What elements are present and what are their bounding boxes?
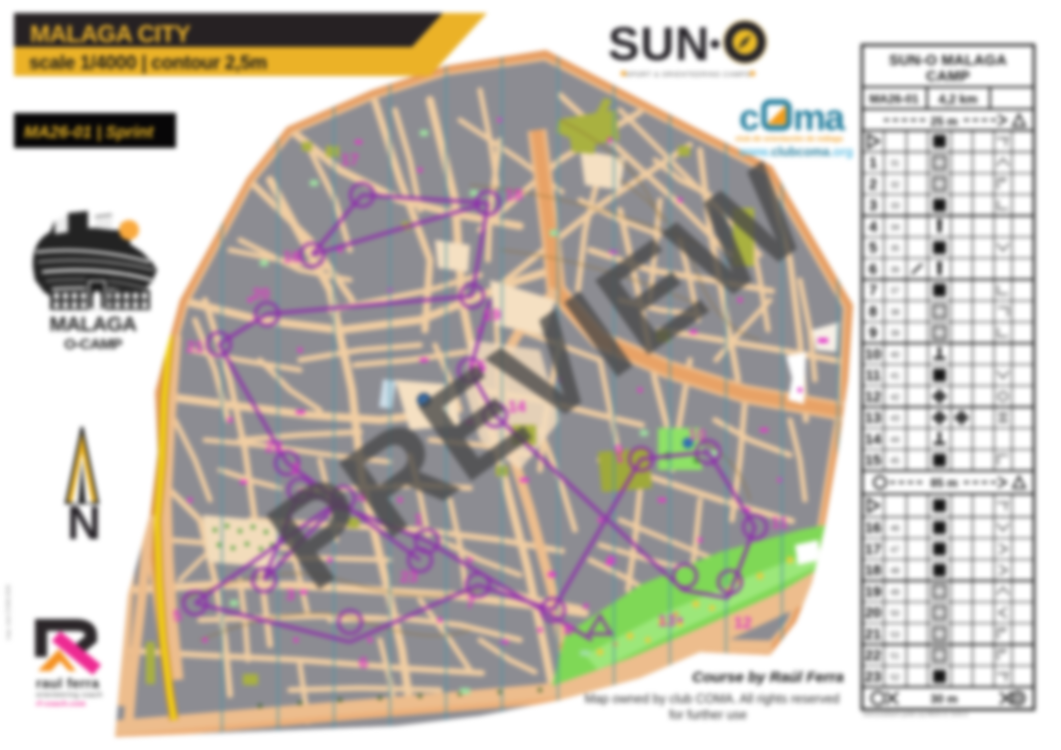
svg-text:50: 50	[891, 609, 900, 618]
svg-text:17: 17	[341, 152, 359, 169]
svg-text:23: 23	[865, 669, 881, 685]
svg-text:10: 10	[688, 427, 706, 444]
svg-text:12: 12	[865, 389, 881, 405]
svg-text:20: 20	[865, 606, 881, 622]
svg-text:Course by Raúl Ferra: Course by Raúl Ferra	[692, 669, 844, 686]
svg-text:46: 46	[891, 524, 900, 533]
svg-text:11: 11	[771, 515, 788, 532]
svg-text:39: 39	[891, 329, 900, 338]
svg-text:3: 3	[286, 587, 295, 604]
svg-text:4,2 km: 4,2 km	[939, 93, 978, 107]
svg-text:1: 1	[869, 156, 877, 172]
svg-text:5: 5	[173, 608, 182, 625]
svg-text:8: 8	[869, 304, 877, 320]
svg-text:51: 51	[891, 652, 900, 661]
svg-text:scale 1/4000 | contour 2,5m: scale 1/4000 | contour 2,5m	[29, 53, 267, 74]
svg-text:18: 18	[865, 563, 881, 579]
svg-text:38: 38	[891, 308, 900, 317]
svg-text:5: 5	[869, 241, 877, 257]
svg-text:MA26-01: MA26-01	[869, 92, 919, 106]
svg-text:club de orientación de málaga: club de orientación de málaga	[735, 134, 843, 143]
svg-text:21: 21	[865, 627, 881, 643]
svg-text:SUN: SUN	[608, 17, 710, 70]
svg-text:36: 36	[891, 265, 900, 274]
svg-text:48: 48	[891, 567, 900, 576]
svg-text:SUN-O MALAGA: SUN-O MALAGA	[889, 53, 1007, 69]
svg-text:21: 21	[186, 339, 204, 356]
svg-text:rf-coach.com: rf-coach.com	[36, 701, 86, 708]
svg-text:32: 32	[891, 180, 900, 189]
svg-text:9: 9	[614, 443, 623, 460]
svg-text:12: 12	[734, 615, 752, 632]
svg-text:map: club COMA 2026: map: club COMA 2026	[6, 585, 12, 640]
svg-text:O-CAMP: O-CAMP	[64, 336, 122, 353]
svg-text:orienteering coach: orienteering coach	[36, 692, 103, 699]
svg-text:43: 43	[891, 414, 900, 423]
svg-text:9: 9	[869, 326, 877, 342]
svg-text:MALAGA CITY: MALAGA CITY	[30, 21, 191, 48]
svg-text:20: 20	[252, 286, 270, 303]
svg-text:18: 18	[505, 187, 523, 204]
svg-text:52: 52	[891, 673, 900, 682]
svg-text:SPORT & ORIENTEERING CAMPS: SPORT & ORIENTEERING CAMPS	[626, 72, 751, 79]
svg-text:MALAGA: MALAGA	[50, 313, 138, 336]
svg-text:16: 16	[283, 249, 301, 266]
svg-text:53: 53	[891, 630, 900, 639]
svg-text:33: 33	[891, 202, 900, 211]
svg-text:49: 49	[891, 588, 900, 597]
svg-text:4: 4	[869, 219, 877, 235]
svg-text:2: 2	[869, 177, 877, 193]
svg-text:19: 19	[865, 584, 881, 600]
svg-text:40: 40	[891, 350, 900, 359]
svg-text:44: 44	[891, 435, 900, 444]
svg-text:Map owned by club COMA. All ri: Map owned by club COMA. All rights reser…	[585, 692, 840, 706]
svg-text:47: 47	[891, 545, 900, 554]
svg-text:34: 34	[891, 223, 900, 232]
svg-text:25 m: 25 m	[930, 115, 957, 129]
svg-text:16: 16	[865, 521, 881, 537]
svg-text:15: 15	[865, 453, 881, 469]
svg-text:7: 7	[466, 595, 475, 612]
svg-text:N: N	[67, 496, 101, 549]
svg-text:13: 13	[865, 411, 881, 427]
svg-text:raul ferra: raul ferra	[36, 676, 100, 691]
svg-text:11: 11	[865, 368, 880, 384]
svg-text:6: 6	[359, 655, 368, 672]
svg-text:42: 42	[891, 393, 900, 402]
svg-text:7: 7	[869, 283, 877, 299]
svg-text:85 m: 85 m	[930, 476, 957, 490]
svg-text:22: 22	[265, 439, 283, 456]
svg-text:17: 17	[865, 542, 881, 558]
svg-text:37: 37	[891, 287, 900, 296]
svg-text:3: 3	[869, 198, 877, 214]
svg-text:c: c	[739, 97, 760, 138]
svg-text:6: 6	[869, 262, 877, 278]
svg-text:31: 31	[891, 159, 900, 168]
svg-text:30 m: 30 m	[930, 692, 957, 706]
svg-text:CAMP: CAMP	[926, 69, 970, 85]
svg-text:10: 10	[865, 347, 881, 363]
svg-text:14: 14	[865, 432, 881, 448]
svg-text:41: 41	[891, 372, 900, 381]
svg-text:for further use: for further use	[669, 708, 747, 722]
svg-text:23: 23	[400, 569, 418, 586]
svg-text:8: 8	[564, 622, 573, 639]
svg-text:35: 35	[891, 244, 900, 253]
svg-text:45: 45	[891, 457, 900, 466]
svg-text:ma: ma	[793, 97, 845, 138]
svg-text:MA26-01 | Sprint: MA26-01 | Sprint	[24, 124, 155, 142]
svg-text:www.purplepen.golde.org MA26-: www.purplepen.golde.org MA26-01 SUN-O	[862, 712, 969, 718]
svg-text:13: 13	[658, 613, 676, 630]
svg-text:22: 22	[865, 648, 881, 664]
